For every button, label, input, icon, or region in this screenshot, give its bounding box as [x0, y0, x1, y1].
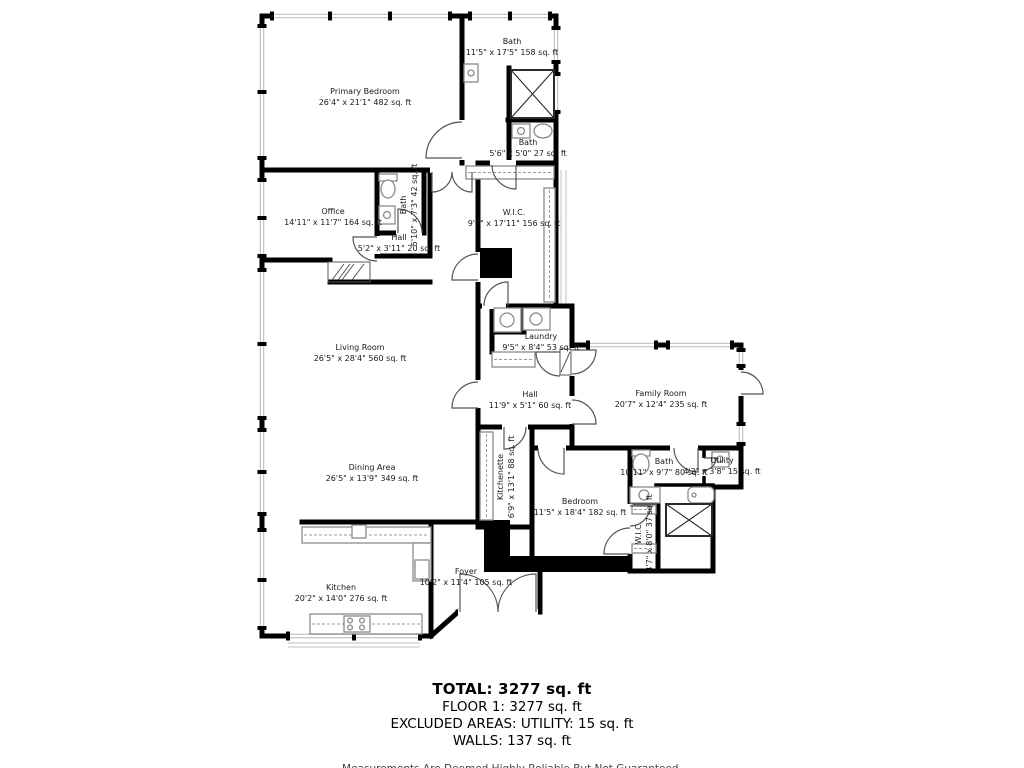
svg-text:26'5" x 28'4" 560 sq. ft: 26'5" x 28'4" 560 sq. ft [314, 354, 407, 363]
svg-text:5'10" x 7'3" 42 sq. ft: 5'10" x 7'3" 42 sq. ft [410, 164, 419, 246]
shower-primary [511, 70, 554, 118]
area-summary: TOTAL: 3277 sq. ft FLOOR 1: 3277 sq. ft … [0, 680, 1024, 768]
svg-text:Bath: Bath [399, 196, 408, 215]
kitchen-island [310, 614, 422, 634]
svg-text:Office: Office [321, 207, 344, 216]
svg-text:Living Room: Living Room [335, 343, 384, 352]
svg-text:Hall: Hall [522, 390, 537, 399]
svg-text:26'5" x 13'9" 349 sq. ft: 26'5" x 13'9" 349 sq. ft [326, 474, 419, 483]
door-family-1 [572, 350, 596, 374]
closet-rail-wic-top [466, 166, 554, 179]
svg-text:Bath: Bath [503, 37, 522, 46]
door-bedroom [604, 528, 630, 554]
svg-text:Bath: Bath [519, 138, 538, 147]
floor-plan-page: Primary Bedroom 26'4" x 21'1" 482 sq. ft… [0, 0, 1024, 768]
svg-text:14'11" x 11'7" 164 sq. ft: 14'11" x 11'7" 164 sq. ft [284, 218, 382, 227]
room-label-primary-bedroom: Primary Bedroom 26'4" x 21'1" 482 sq. ft [319, 87, 412, 107]
room-label-bath-primary: Bath 11'5" x 17'5" 158 sq. ft [466, 37, 559, 57]
svg-text:20'7" x 12'4" 235 sq. ft: 20'7" x 12'4" 235 sq. ft [615, 400, 708, 409]
closet-rail-wic-right [544, 188, 555, 302]
svg-text:Foyer: Foyer [455, 567, 478, 576]
room-label-kitchenette: Kitchenette 6'9" x 13'1" 88 sq. ft [496, 436, 516, 518]
door-laundry [536, 352, 560, 376]
svg-text:5'6" x 5'0" 27 sq. ft: 5'6" x 5'0" 27 sq. ft [489, 149, 566, 158]
svg-text:11'5" x 17'5" 158 sq. ft: 11'5" x 17'5" 158 sq. ft [466, 48, 559, 57]
svg-text:5'2" x 3'11" 20 sq. ft: 5'2" x 3'11" 20 sq. ft [358, 244, 440, 253]
room-label-living-room: Living Room 26'5" x 28'4" 560 sq. ft [314, 343, 407, 363]
svg-text:11'9" x 5'1" 60 sq. ft: 11'9" x 5'1" 60 sq. ft [489, 401, 571, 410]
room-label-bedroom: Bedroom 11'5" x 18'4" 182 sq. ft [534, 497, 627, 517]
svg-text:4'2" x 3'8" 15 sq. ft: 4'2" x 3'8" 15 sq. ft [683, 467, 760, 476]
summary-disclaimer: Measurements Are Deemed Highly Reliable … [0, 763, 1024, 768]
room-label-dining-area: Dining Area 26'5" x 13'9" 349 sq. ft [326, 463, 419, 483]
door-balcony-family [741, 372, 763, 394]
wic-column-block [480, 248, 512, 278]
room-label-hall-main: Hall 11'9" x 5'1" 60 sq. ft [489, 390, 571, 410]
tub-main-bath [688, 487, 714, 503]
kitchenette-counter [480, 432, 493, 520]
svg-text:Dining Area: Dining Area [349, 463, 396, 472]
laundry-counter [492, 352, 535, 367]
door-primary-bedroom [426, 122, 462, 158]
vanity-small-bath [512, 124, 552, 138]
svg-text:4'7" x 8'0" 37 sq. ft: 4'7" x 8'0" 37 sq. ft [645, 494, 654, 571]
svg-text:Family Room: Family Room [635, 389, 686, 398]
svg-text:Bath: Bath [655, 457, 674, 466]
summary-floor: FLOOR 1: 3277 sq. ft [0, 699, 1024, 715]
svg-text:9'5" x 8'4" 53 sq. ft: 9'5" x 8'4" 53 sq. ft [502, 343, 579, 352]
svg-text:26'4" x 21'1" 482 sq. ft: 26'4" x 21'1" 482 sq. ft [319, 98, 412, 107]
door-living-corridor [452, 254, 478, 280]
stair-hatch [328, 262, 370, 282]
shower-main-bath [666, 504, 712, 536]
svg-text:Bedroom: Bedroom [562, 497, 598, 506]
svg-text:Kitchen: Kitchen [326, 583, 356, 592]
room-label-laundry: Laundry 9'5" x 8'4" 53 sq. ft [502, 332, 579, 352]
room-label-kitchen: Kitchen 20'2" x 14'0" 276 sq. ft [295, 583, 388, 603]
toilet-office-bath [379, 174, 397, 198]
summary-total: TOTAL: 3277 sq. ft [0, 680, 1024, 698]
room-label-family-room: Family Room 20'7" x 12'4" 235 sq. ft [615, 389, 708, 409]
svg-text:10'2" x 11'4" 105 sq. ft: 10'2" x 11'4" 105 sq. ft [420, 578, 513, 587]
svg-text:W.I.C.: W.I.C. [634, 522, 643, 545]
door-family-2 [572, 400, 596, 424]
svg-text:Utility: Utility [710, 456, 734, 465]
svg-text:Hall: Hall [391, 233, 406, 242]
kitchen-counter-top [302, 525, 431, 543]
door-bedroom-hall [538, 448, 564, 474]
floor-plan-svg: Primary Bedroom 26'4" x 21'1" 482 sq. ft… [0, 0, 1024, 768]
door-dining-hall [452, 382, 478, 408]
svg-text:Kitchenette: Kitchenette [496, 454, 505, 500]
foyer-column-block [484, 520, 510, 558]
svg-text:Laundry: Laundry [525, 332, 558, 341]
svg-text:6'9" x 13'1" 88 sq. ft: 6'9" x 13'1" 88 sq. ft [507, 436, 516, 518]
svg-text:11'5" x 18'4" 182 sq. ft: 11'5" x 18'4" 182 sq. ft [534, 508, 627, 517]
svg-text:20'2" x 14'0" 276 sq. ft: 20'2" x 14'0" 276 sq. ft [295, 594, 388, 603]
svg-text:9'7" x 17'11" 156 sq. ft: 9'7" x 17'11" 156 sq. ft [468, 219, 561, 228]
svg-text:Primary Bedroom: Primary Bedroom [330, 87, 400, 96]
door-wic-primary [484, 282, 508, 306]
summary-walls: WALLS: 137 sq. ft [0, 733, 1024, 749]
summary-excluded: EXCLUDED AREAS: UTILITY: 15 sq. ft [0, 716, 1024, 732]
sink-primary-bath [464, 64, 478, 82]
svg-text:W.I.C.: W.I.C. [503, 208, 526, 217]
kitchen-counter-right [413, 543, 431, 581]
bedroom-bottom-wall-band [484, 556, 632, 572]
room-label-office: Office 14'11" x 11'7" 164 sq. ft [284, 207, 382, 227]
